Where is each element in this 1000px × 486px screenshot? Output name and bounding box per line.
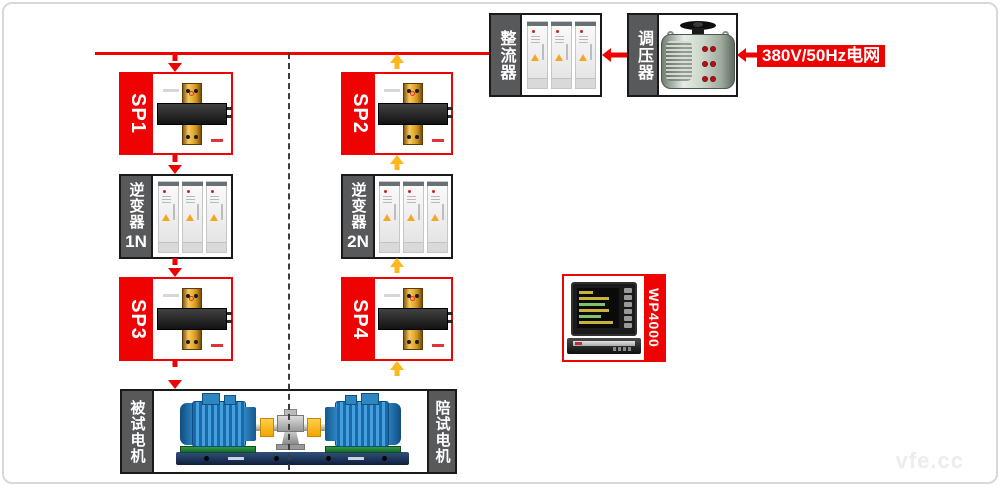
rectifier-label-strip: 整流器 bbox=[491, 15, 522, 95]
arrow-bus-to-sp1 bbox=[168, 54, 182, 72]
tested-motor-base-plate bbox=[180, 446, 256, 453]
analyzer-instrument-image bbox=[567, 282, 641, 354]
sp2-label: SP2 bbox=[348, 93, 371, 134]
sp3-label-strip: SP3 bbox=[121, 279, 153, 359]
grid-source-label: 380V/50Hz电网 bbox=[757, 45, 885, 67]
node-regulator: 调压器 bbox=[627, 13, 738, 97]
node-inverter-2n: 逆变器 2N bbox=[341, 174, 453, 259]
arrow-accompanying-motor-to-sp4 bbox=[390, 361, 404, 389]
watermark-text: vfe.cc bbox=[896, 448, 964, 474]
sp3-content bbox=[153, 279, 231, 359]
accompanying-motor-label-strip: 陪试电机 bbox=[427, 391, 455, 472]
node-sp4: SP4 bbox=[341, 277, 453, 361]
sp4-sensor-image bbox=[378, 288, 448, 350]
inverter-2n-cabinets-image bbox=[379, 181, 448, 253]
sp3-sensor-image bbox=[157, 288, 227, 350]
regulator-content bbox=[659, 15, 736, 95]
node-analyzer: WP4000 bbox=[562, 274, 666, 362]
sp2-content bbox=[375, 74, 451, 153]
torque-sensor-pedestal bbox=[282, 432, 299, 444]
tested-motor-label: 被试电机 bbox=[130, 400, 145, 464]
inverter-2n-unit: 2N bbox=[347, 232, 369, 252]
inverter-1n-label: 逆变器 bbox=[129, 182, 144, 230]
sp4-content bbox=[375, 279, 451, 359]
diagram-canvas: 380V/50Hz电网 SP1 SP2 bbox=[0, 0, 1000, 486]
sp4-label-strip: SP4 bbox=[343, 279, 375, 359]
analyzer-label: WP4000 bbox=[646, 288, 662, 348]
sp1-content bbox=[153, 74, 231, 153]
node-inverter-1n: 逆变器 1N bbox=[119, 174, 233, 259]
tested-motor-image bbox=[180, 401, 258, 447]
regulator-label-strip: 调压器 bbox=[629, 15, 659, 95]
inverter-1n-unit: 1N bbox=[125, 232, 147, 252]
inverter-1n-content bbox=[153, 176, 231, 257]
accompanying-motor-label: 陪试电机 bbox=[435, 400, 450, 464]
arrow-inverter2n-to-sp2 bbox=[390, 155, 404, 174]
node-sp3: SP3 bbox=[119, 277, 233, 361]
arrow-sp4-to-inverter2n bbox=[390, 258, 404, 277]
regulator-transformer-image bbox=[661, 21, 735, 89]
coupling-left bbox=[260, 418, 274, 437]
torque-sensor-image bbox=[277, 415, 304, 432]
analyzer-content bbox=[564, 276, 644, 360]
sp4-label: SP4 bbox=[348, 299, 371, 340]
regulator-label: 调压器 bbox=[635, 30, 651, 81]
accompanying-motor-image bbox=[323, 401, 401, 447]
coupling-right bbox=[307, 418, 321, 437]
rectifier-content bbox=[522, 15, 600, 95]
arrow-regulator-to-rectifier bbox=[602, 48, 627, 62]
sp2-sensor-image bbox=[378, 83, 448, 145]
torque-sensor-base bbox=[276, 444, 305, 450]
node-rectifier: 整流器 bbox=[489, 13, 602, 97]
arrow-sp3-to-tested-motor bbox=[168, 360, 182, 389]
rectifier-cabinets-image bbox=[527, 21, 596, 89]
inverter-2n-content bbox=[375, 176, 451, 257]
arrow-inverter1n-to-sp3 bbox=[168, 258, 182, 277]
arrow-grid-to-regulator bbox=[737, 48, 757, 62]
axis-dashed-line bbox=[288, 53, 290, 470]
bench-rail bbox=[176, 452, 409, 465]
sp2-label-strip: SP2 bbox=[343, 74, 375, 153]
rectifier-label: 整流器 bbox=[498, 30, 514, 81]
arrow-sp2-to-bus bbox=[390, 54, 404, 72]
inverter-1n-label-strip: 逆变器 1N bbox=[121, 176, 153, 257]
inverter-2n-label-strip: 逆变器 2N bbox=[343, 176, 375, 257]
inverter-2n-label: 逆变器 bbox=[351, 182, 366, 230]
node-sp2: SP2 bbox=[341, 72, 453, 155]
dc-bus-line bbox=[95, 52, 489, 55]
sp3-label: SP3 bbox=[126, 299, 149, 340]
sp1-label: SP1 bbox=[126, 93, 149, 134]
tested-motor-label-strip: 被试电机 bbox=[122, 391, 154, 472]
arrow-sp1-to-inverter1n bbox=[168, 155, 182, 174]
accompanying-motor-base-plate bbox=[325, 446, 401, 453]
sp1-sensor-image bbox=[157, 83, 227, 145]
motor-bench-image bbox=[154, 391, 427, 472]
inverter-1n-cabinets-image bbox=[158, 181, 227, 253]
analyzer-label-strip: WP4000 bbox=[644, 276, 664, 360]
node-sp1: SP1 bbox=[119, 72, 233, 155]
sp1-label-strip: SP1 bbox=[121, 74, 153, 153]
